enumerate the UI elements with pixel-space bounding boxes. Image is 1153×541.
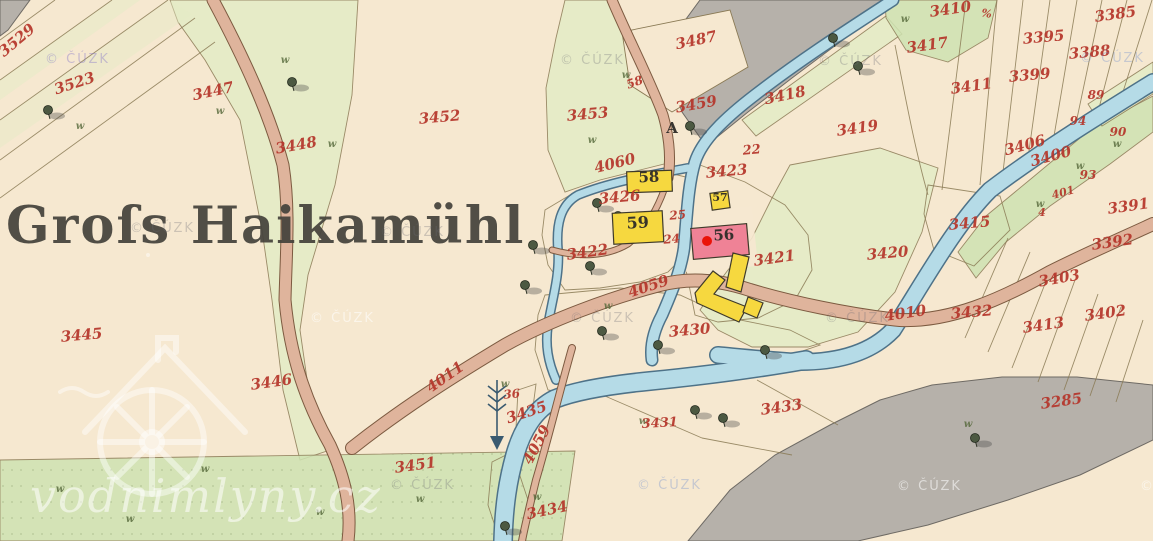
parcel-label: 3426 [598,186,642,208]
parcel-label: 89 [1088,88,1105,102]
copyright-watermark: © ČÚZK [130,220,195,236]
cadastral-map-canvas[interactable]: wwwwwwwwwwwwwwwwwwww Groſs Haikamühl 352… [0,0,1153,541]
copyright-watermark: © ČÚZK [897,478,962,494]
copyright-watermark: © ČÚZK [390,477,455,493]
parcel-label: 3420 [866,242,910,264]
copyright-watermark: © ČÚZK [1140,478,1153,494]
grass-icon: w [328,139,337,150]
grass-icon: w [901,14,910,25]
parcel-label: 3445 [60,324,103,346]
parcel-label: 93 [1080,168,1097,182]
building-label: A [665,119,678,137]
mill-marker[interactable] [702,236,712,246]
copyright-watermark: © ČÚZK [1080,50,1145,66]
parcel-label: 90 [1110,125,1127,139]
parcel-label: 36 [503,386,522,401]
parcel-label: 3452 [418,106,461,128]
site-watermark: vodnimlyny.cz [30,469,382,523]
parcel-label: 3399 [1008,64,1052,86]
place-name: Groſs Haikamühl [6,196,525,256]
copyright-watermark: © ČÚZK [818,53,883,69]
copyright-watermark: © ČÚZK [45,51,110,67]
parcel-label: 24 [662,231,681,246]
copyright-watermark: © ČÚZK [310,310,375,326]
parcel-label: 4 [1038,206,1046,219]
grass-icon: w [76,121,85,132]
parcel-label: % [980,6,993,21]
copyright-watermark: © ČÚZK [825,310,890,326]
parcel-label: 3395 [1022,26,1065,48]
parcel-label: 3453 [566,103,609,125]
building-label: 59 [626,212,649,232]
grass-icon: w [1113,139,1122,150]
copyright-watermark: © ČÚZK [570,310,635,326]
grass-icon: w [964,419,973,430]
copyright-watermark: © ČÚZK [637,477,702,493]
building-label: 56 [713,225,735,244]
parcel-label: 3432 [950,301,993,323]
parcel-label: 22 [741,142,761,159]
grass-icon: w [588,135,597,146]
building-label: 57 [712,191,727,204]
parcel-label: 3415 [948,212,991,234]
parcel-label: 3430 [668,319,712,341]
grass-icon: w [281,55,290,66]
parcel-label: 25 [668,207,687,222]
copyright-watermark: © ČÚZK [560,52,625,68]
grass-icon: w [416,494,425,505]
parcel-label: 3431 [641,415,678,432]
copyright-watermark: © ČÚZK [380,224,445,240]
grass-icon: w [216,106,225,117]
parcel-label: 94 [1070,114,1087,128]
building-label: 58 [638,168,659,187]
marker-layer [702,236,712,246]
parcel-label: 3423 [705,160,748,182]
